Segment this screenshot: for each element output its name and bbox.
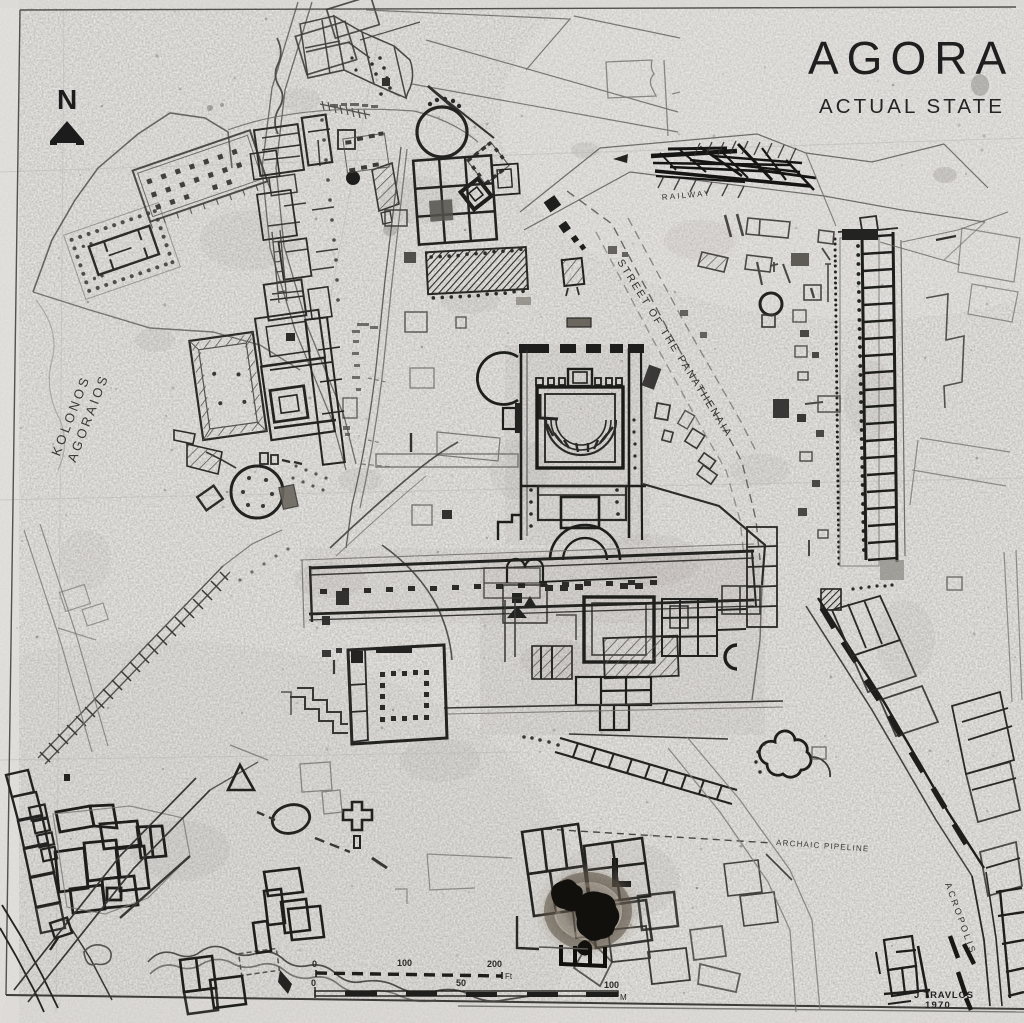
svg-text:N: N — [57, 84, 77, 115]
svg-text:0: 0 — [312, 959, 317, 969]
svg-text:AGORA: AGORA — [808, 32, 1014, 84]
svg-text:100: 100 — [604, 980, 619, 990]
svg-text:0: 0 — [311, 978, 316, 988]
svg-text:50: 50 — [456, 978, 466, 988]
svg-text:1970: 1970 — [925, 1000, 951, 1011]
svg-text:M: M — [620, 993, 627, 1002]
svg-text:Ft: Ft — [505, 972, 513, 981]
svg-text:ACTUAL STATE: ACTUAL STATE — [819, 95, 1005, 118]
svg-text:100: 100 — [397, 958, 412, 968]
svg-text:200: 200 — [487, 959, 502, 969]
